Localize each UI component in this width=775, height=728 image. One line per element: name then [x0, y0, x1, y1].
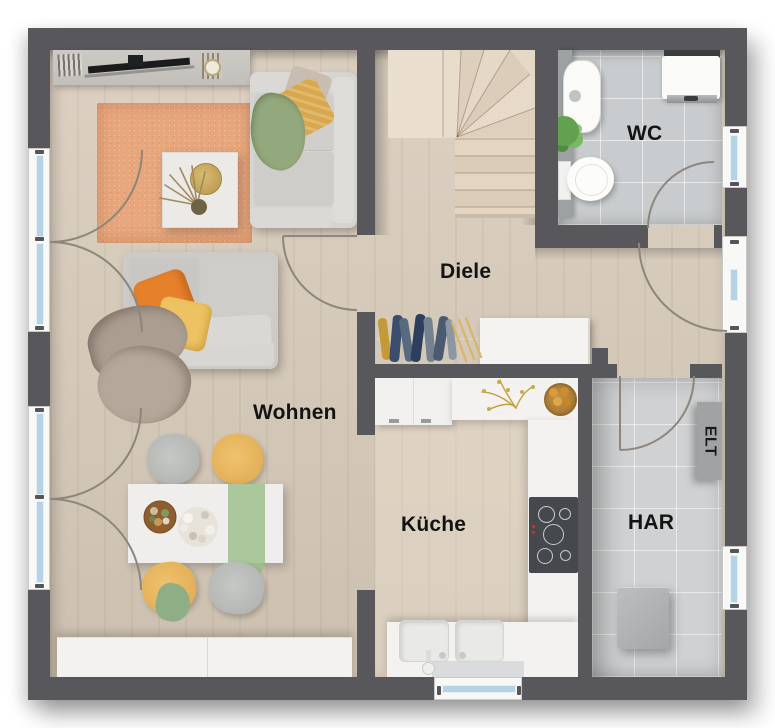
sofa-backrest: [332, 77, 354, 223]
wall: [357, 364, 617, 378]
elt-cabinet: ELT: [697, 402, 722, 480]
wall: [357, 590, 375, 677]
fruit-bowl: [544, 383, 577, 416]
heater-base: [667, 95, 717, 103]
sink-knob: [439, 652, 446, 659]
toilet: [567, 157, 614, 201]
sofa-armrest: [250, 208, 332, 228]
water-heater: [662, 56, 720, 99]
har-window: [722, 546, 747, 610]
room-label-wc: WC: [627, 122, 662, 146]
terrace-door-window: [28, 406, 50, 590]
sofa: [250, 72, 357, 228]
lowboard: [57, 637, 352, 677]
faucet-base: [422, 662, 435, 675]
shoe-cabinet: [480, 318, 590, 364]
room-label-wohnen: Wohnen: [253, 401, 337, 425]
gold-tray: [190, 163, 222, 195]
washing-machine: [617, 587, 669, 649]
room-label-kueche: Küche: [401, 513, 466, 537]
wall: [535, 50, 558, 248]
decor-plate: [204, 59, 221, 76]
cooktop: [529, 497, 578, 573]
floor-plan: ELT: [0, 0, 775, 728]
faucet: [569, 90, 581, 102]
dining-table: [128, 484, 283, 563]
sink-knob: [459, 652, 466, 659]
staircase: [388, 50, 535, 218]
tv-sideboard: [53, 50, 250, 85]
white-cushion: [206, 314, 271, 347]
table-runner: [228, 484, 265, 563]
room-label-diele: Diele: [440, 260, 491, 284]
wc-window: [722, 126, 747, 188]
fridge: [375, 377, 452, 425]
blanket: [88, 306, 198, 428]
wall: [714, 225, 722, 248]
books: [57, 53, 82, 76]
wall-pier: [592, 348, 608, 364]
room-label-har: HAR: [628, 511, 674, 535]
terrace-door-window: [28, 148, 50, 332]
wall: [535, 225, 648, 248]
wall: [578, 378, 592, 677]
wall: [690, 364, 722, 378]
wall: [357, 50, 375, 235]
entrance-door: [722, 236, 747, 333]
kitchen-window: [434, 677, 522, 700]
elt-label: ELT: [701, 426, 719, 457]
window-sill: [432, 661, 524, 677]
